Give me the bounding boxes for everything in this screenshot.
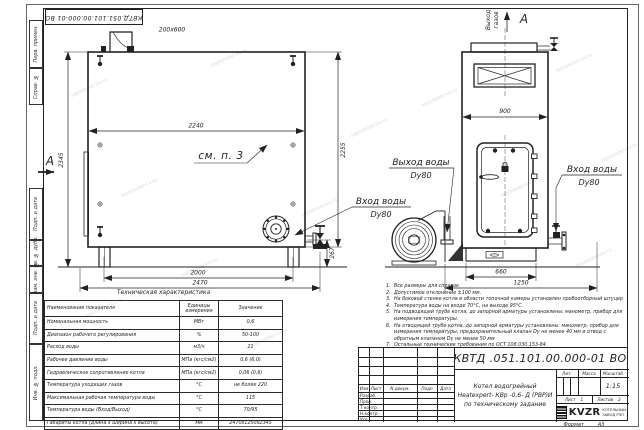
- format-word: Формат: [564, 422, 584, 428]
- param-units: %: [180, 329, 219, 342]
- section-mark-a-left: А: [45, 154, 54, 168]
- table-row: Температура воды (Вход/Выход)°С70/95: [45, 405, 283, 418]
- tech-table-header-row: Наименование показателя Единицы измерени…: [45, 301, 283, 317]
- note-item: 1.Все размеры для справок: [386, 284, 626, 291]
- kvzr-logo-icon: [556, 406, 567, 419]
- table-row: Габариты котла (длина х ширина х высота)…: [45, 417, 283, 430]
- water-inlet-dy-side: Dy80: [578, 178, 599, 187]
- side-inlet-flange: [548, 226, 566, 250]
- table-row: Расход водым3/ч21: [45, 342, 283, 355]
- table-row: Гидравлическое сопротивление котлаМПа (к…: [45, 367, 283, 380]
- param-value: 0,6: [219, 317, 283, 330]
- air-valve-icons: [97, 56, 296, 237]
- dim-chimney: 200х600: [159, 27, 186, 34]
- param-units: °С: [180, 379, 219, 392]
- tb-col-izm: Изм: [359, 384, 369, 392]
- front-view: [38, 32, 411, 292]
- water-inlet-label-side: Вход воды: [567, 165, 617, 175]
- param-value: 0,6 (6,0): [219, 354, 283, 367]
- param-value: не более 220: [219, 379, 283, 392]
- dim-267: 267: [329, 247, 336, 259]
- dim-2470: 2470: [192, 280, 207, 287]
- inlet-valve-assembly: [305, 226, 327, 249]
- water-outlet-label: Выход воды: [392, 158, 449, 168]
- see-note-label: см. п. 3: [198, 150, 243, 162]
- scale-value: 1:15: [600, 377, 626, 395]
- water-outlet-dy: Dy80: [410, 171, 431, 180]
- note-item: 3.На боковой стенке котла в области топо…: [386, 297, 626, 304]
- format-label: Формат А3: [540, 422, 628, 428]
- param-name: Расход воды: [45, 342, 180, 355]
- table-row: Номинальная мощностьМВт0,6: [45, 317, 283, 330]
- water-inlet-label-front: Вход воды: [356, 197, 406, 207]
- note-text: Все размеры для справок: [394, 284, 626, 291]
- dim-2255: 2255: [340, 142, 347, 157]
- tb-row-utv: Утв.: [359, 416, 384, 422]
- table-row: Температура уходящих газов°Сне более 220: [45, 379, 283, 392]
- gas-outlet-label-2: газов: [493, 11, 500, 29]
- format-value: А3: [598, 422, 605, 428]
- dim-2240: 2240: [188, 123, 203, 130]
- tb-lit-label: Лит.: [556, 369, 578, 377]
- tech-header-value: Значение: [219, 301, 283, 317]
- drawing-sheet: teplokotel-kv.ru teplokotel-kv.ru teplok…: [0, 0, 644, 430]
- doc-number: КВТД .051.101.00.000-01 ВО: [454, 348, 626, 369]
- sheets-label: Листов: [597, 397, 613, 402]
- param-units: МПа (кгс/см2): [180, 354, 219, 367]
- hatch-x-box: [474, 64, 535, 87]
- gas-outlet-label-1: Выход: [485, 10, 492, 30]
- param-units: МВт: [180, 317, 219, 330]
- company-name: КОТЕЛЬНЫЙ ЗАВОД РЭП: [602, 408, 626, 417]
- company-name-line1: КОТЕЛЬНЫЙ: [602, 408, 626, 412]
- param-value: 50-100: [219, 329, 283, 342]
- tech-table-title: Техническая характеристика: [44, 289, 283, 296]
- note-text: На подводящей трубе котла, до запорной а…: [394, 310, 626, 323]
- notes-list: 1.Все размеры для справок 2.Допустимое о…: [386, 284, 626, 350]
- tb-line: [359, 366, 454, 367]
- param-value: 2470х1250х2345: [219, 417, 283, 430]
- param-units: МПа (кгс/см2): [180, 367, 219, 380]
- water-inlet-flange: [263, 216, 289, 242]
- top-valve: [537, 38, 558, 51]
- table-row: Диапазон рабочего регулирования%50-100: [45, 329, 283, 342]
- dim-2345: 2345: [58, 152, 65, 167]
- note-text: На отводящей трубе котла, до запорной ар…: [394, 324, 626, 344]
- param-units: °С: [180, 405, 219, 418]
- tb-line: [359, 357, 454, 358]
- water-inlet-dy-front: Dy80: [370, 210, 391, 219]
- section-mark-a-right: А: [519, 12, 528, 26]
- product-name-line3: по техническому задание: [464, 400, 546, 409]
- sheet-label: Лист: [565, 397, 576, 402]
- furnace-door: [477, 143, 537, 237]
- sheet-value: 1: [580, 397, 583, 402]
- param-units: м3/ч: [180, 342, 219, 355]
- param-value: 115: [219, 392, 283, 405]
- sheets-value: 2: [618, 397, 621, 402]
- dim-660: 660: [495, 269, 507, 276]
- table-row: Максимальная рабочая температура воды°С1…: [45, 392, 283, 405]
- tb-line: [359, 375, 454, 376]
- note-number: 5.: [386, 310, 394, 323]
- tb-col-list: Лист: [369, 384, 383, 392]
- note-number: 6.: [386, 324, 394, 344]
- note-text: На боковой стенке котла в области топочн…: [394, 297, 626, 304]
- front-view-dimensions: [64, 52, 342, 292]
- kvzr-logo-text: KVZR: [569, 407, 601, 418]
- sheet-cell: Лист 1: [556, 395, 592, 403]
- param-name: Температура воды (Вход/Выход): [45, 405, 180, 418]
- tb-mass-label: Масса: [578, 369, 600, 377]
- burner-fan: [392, 211, 463, 265]
- tech-table: Наименование показателя Единицы измерени…: [44, 300, 283, 430]
- param-name: Максимальная рабочая температура воды: [45, 392, 180, 405]
- note-item: 6.На отводящей трубе котла, до запорной …: [386, 324, 626, 344]
- param-value: 70/95: [219, 405, 283, 418]
- company-name-line2: ЗАВОД РЭП: [602, 413, 626, 417]
- tech-header-name: Наименование показателя: [45, 301, 180, 317]
- dim-900: 900: [499, 108, 511, 115]
- param-name: Гидравлическое сопротивление котла: [45, 367, 180, 380]
- product-name: Котел водогрейный Heatexpert- КВр -0,6- …: [454, 369, 556, 422]
- param-name: Рабочее давление воды: [45, 354, 180, 367]
- table-row: Рабочее давление водыМПа (кгс/см2)0,6 (6…: [45, 354, 283, 367]
- note-number: 1.: [386, 284, 394, 291]
- title-block: Изм Лист N докум. Подп Дата Разраб. Пров…: [358, 347, 628, 421]
- door-handle: [479, 175, 498, 180]
- dim-2000: 2000: [190, 270, 205, 277]
- param-name: Габариты котла (длина х ширина х высота): [45, 417, 180, 430]
- tb-col-ndoc: N докум.: [383, 384, 417, 392]
- base-skid: [466, 248, 536, 261]
- param-value: 21: [219, 342, 283, 355]
- product-name-line1: Котел водогрейный: [474, 382, 537, 391]
- note-number: 3.: [386, 297, 394, 304]
- param-name: Номинальная мощность: [45, 317, 180, 330]
- tb-col-data: Дата: [437, 384, 454, 392]
- param-value: 0,06 (0,6): [219, 367, 283, 380]
- chimney-stub: [101, 32, 134, 52]
- sheets-cell: Листов 2: [592, 395, 626, 403]
- tech-header-units: Единицы измерения: [180, 301, 219, 317]
- note-item: 5.На подводящей трубе котла, до запорной…: [386, 310, 626, 323]
- param-name: Диапазон рабочего регулирования: [45, 329, 180, 342]
- tb-col-podp: Подп: [417, 384, 437, 392]
- side-view: [385, 12, 622, 292]
- tb-scale-label: Масштаб: [600, 369, 626, 377]
- tb-line: [563, 377, 564, 395]
- param-name: Температура уходящих газов: [45, 379, 180, 392]
- param-units: °С: [180, 392, 219, 405]
- product-name-line2: Heatexpert- КВр -0,6- Д (РВР)И: [458, 391, 553, 400]
- company-logo: KVZR КОТЕЛЬНЫЙ ЗАВОД РЭП: [556, 403, 626, 422]
- param-units: мм: [180, 417, 219, 430]
- tb-line: [570, 377, 571, 395]
